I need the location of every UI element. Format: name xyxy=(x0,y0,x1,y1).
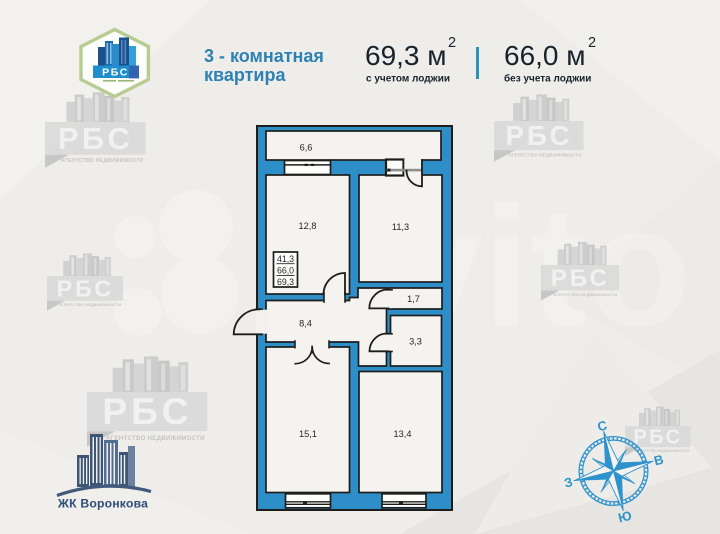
svg-text:15,1: 15,1 xyxy=(299,429,317,439)
svg-text:РБС: РБС xyxy=(102,67,129,79)
svg-text:6,6: 6,6 xyxy=(300,143,313,153)
svg-text:1,7: 1,7 xyxy=(407,294,420,304)
svg-text:8,4: 8,4 xyxy=(299,319,312,329)
svg-text:квартира: квартира xyxy=(204,65,286,85)
svg-text:66,0: 66,0 xyxy=(277,266,294,276)
svg-text:69,3 м: 69,3 м xyxy=(365,40,447,71)
svg-text:3,3: 3,3 xyxy=(409,337,422,347)
svg-text:41,3: 41,3 xyxy=(277,254,294,264)
svg-text:69,3: 69,3 xyxy=(277,277,294,287)
svg-text:12,8: 12,8 xyxy=(299,221,317,231)
svg-text:3 - комнатная: 3 - комнатная xyxy=(204,46,324,66)
svg-text:2: 2 xyxy=(588,35,596,51)
svg-text:ЖК Воронкова: ЖК Воронкова xyxy=(57,497,148,511)
svg-text:с учетом лоджии: с учетом лоджии xyxy=(366,74,450,85)
svg-text:66,0 м: 66,0 м xyxy=(504,40,586,71)
svg-text:2: 2 xyxy=(448,35,456,51)
svg-text:11,3: 11,3 xyxy=(392,222,409,232)
svg-text:13,4: 13,4 xyxy=(394,429,412,439)
svg-text:без учета лоджии: без учета лоджии xyxy=(504,73,591,85)
